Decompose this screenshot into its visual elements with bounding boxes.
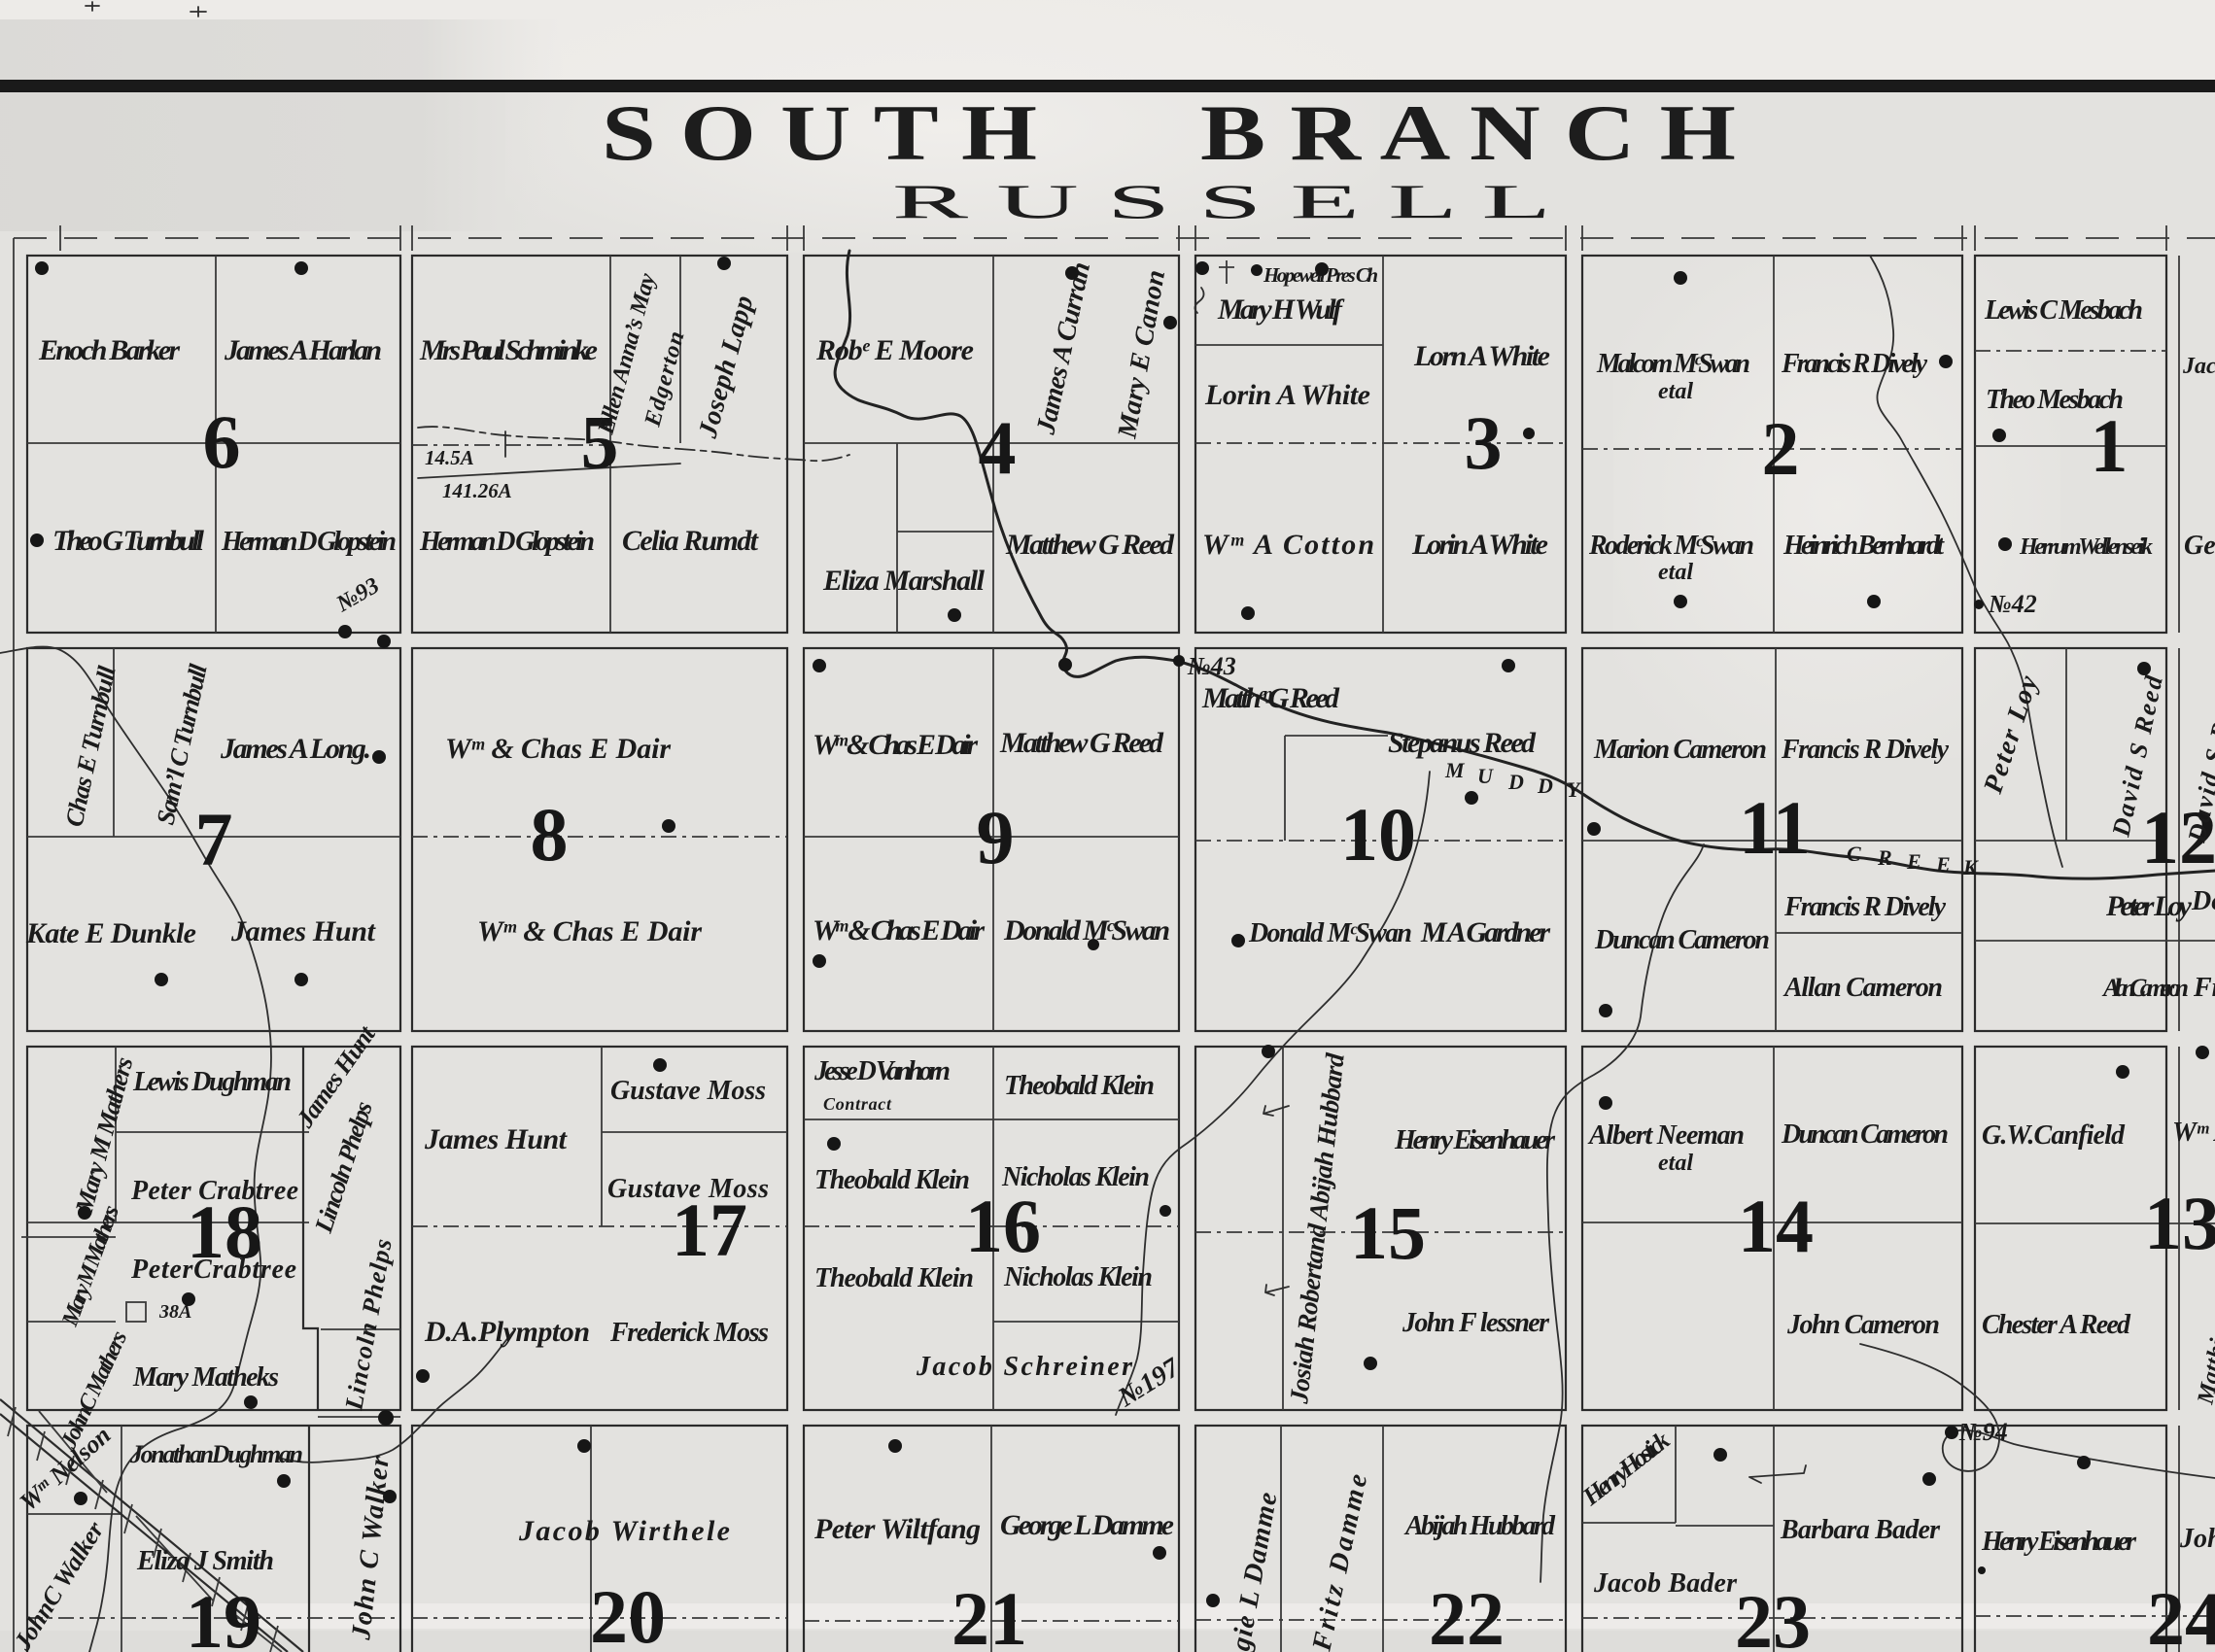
svg-text:Marion Cameron: Marion Cameron	[1593, 735, 1767, 765]
svg-text:16: 16	[965, 1184, 1041, 1268]
svg-text:Wᵐ & Chas E Dair: Wᵐ & Chas E Dair	[477, 915, 702, 947]
svg-text:21: 21	[952, 1576, 1027, 1652]
svg-text:24: 24	[2147, 1576, 2215, 1652]
svg-text:15: 15	[1350, 1190, 1426, 1275]
svg-text:HerrumWellenseik: HerrumWellenseik	[2019, 534, 2153, 560]
svg-text:Donald MᶜSwan: Donald MᶜSwan	[1003, 914, 1170, 946]
svg-text:Jacob Wirthele: Jacob Wirthele	[518, 1515, 730, 1547]
svg-text:6: 6	[203, 399, 241, 484]
svg-text:C: C	[1847, 842, 1861, 866]
svg-text:JonathanDughman: JonathanDughman	[129, 1440, 303, 1468]
svg-text:3: 3	[1465, 400, 1503, 485]
svg-text:Nicholas Klein: Nicholas Klein	[1003, 1262, 1153, 1292]
svg-text:etal: etal	[1658, 560, 1693, 585]
svg-text:19: 19	[186, 1579, 261, 1652]
svg-text:Theo Mesbach: Theo Mesbach	[1986, 385, 2124, 415]
svg-text:Nicholas Klein: Nicholas Klein	[1001, 1162, 1150, 1192]
svg-text:2: 2	[1762, 406, 1800, 491]
svg-text:Mary Matheks: Mary Matheks	[132, 1362, 279, 1393]
svg-text:John F lessner: John F lessner	[1402, 1308, 1550, 1338]
svg-text:Francis R Dively: Francis R Dively	[1783, 892, 1947, 922]
svg-text:John: John	[2179, 1524, 2215, 1554]
svg-text:Herman D Glopstein: Herman D Glopstein	[221, 527, 397, 557]
svg-text:Gustave Moss: Gustave Moss	[607, 1174, 769, 1204]
svg-text:Theobald Klein: Theobald Klein	[814, 1263, 974, 1293]
svg-text:14: 14	[1738, 1184, 1814, 1268]
svg-text:Malcom MᶜSwan: Malcom MᶜSwan	[1596, 349, 1750, 379]
svg-text:etal: etal	[1658, 379, 1693, 404]
svg-text:Matthew G Reed: Matthew G Reed	[1005, 529, 1175, 561]
svg-text:141.26A: 141.26A	[442, 479, 512, 502]
svg-text:MatthᵉᵑG Reed: MatthᵉᵑG Reed	[1201, 682, 1340, 714]
svg-text:E: E	[1935, 852, 1951, 877]
svg-text:etal: etal	[1658, 1151, 1693, 1176]
svg-text:Jesse D Vanhorn: Jesse D Vanhorn	[813, 1056, 951, 1086]
svg-text:Eliza Marshall: Eliza Marshall	[822, 565, 986, 597]
svg-text:R: R	[1877, 845, 1892, 870]
svg-text:№94: №94	[1958, 1418, 2008, 1446]
svg-text:14.5A: 14.5A	[425, 446, 474, 469]
svg-text:Wᵐ & Chas E Dair: Wᵐ & Chas E Dair	[813, 914, 985, 946]
svg-text:23: 23	[1735, 1579, 1811, 1652]
svg-text:Allan Cameron: Allan Cameron	[1782, 973, 1943, 1003]
svg-text:Lorn A White: Lorn A White	[1413, 340, 1550, 372]
svg-text:20: 20	[590, 1574, 666, 1652]
svg-text:Henry Eisenhauer: Henry Eisenhauer	[1394, 1125, 1556, 1155]
svg-text:11: 11	[1739, 785, 1811, 870]
svg-text:Theobald Klein: Theobald Klein	[814, 1165, 970, 1195]
svg-text:Matthew G Reed: Matthew G Reed	[999, 727, 1164, 759]
svg-text:Chester A Reed: Chester A Reed	[1982, 1310, 2131, 1340]
svg-text:PeterCrabtree: PeterCrabtree	[130, 1255, 296, 1285]
svg-text:Kate E Dunkle: Kate E Dunkle	[25, 917, 196, 949]
svg-text:S O U T H: S O U T H	[602, 88, 1037, 177]
svg-text:Contract: Contract	[823, 1094, 892, 1114]
svg-text:№43: №43	[1187, 652, 1236, 680]
svg-text:Stepanus Reed: Stepanus Reed	[1388, 727, 1537, 759]
svg-text:Dona: Dona	[2191, 886, 2215, 916]
svg-text:Roderick MᶜSwan: Roderick MᶜSwan	[1588, 531, 1754, 561]
svg-text:Henry Eisenhauer: Henry Eisenhauer	[1981, 1527, 2137, 1557]
svg-text:D.A.Plympton: D.A.Plympton	[424, 1316, 590, 1348]
svg-text:22: 22	[1429, 1576, 1505, 1652]
svg-text:Jacob Bader: Jacob Bader	[1593, 1568, 1738, 1599]
svg-text:Lewis C Mesbach: Lewis C Mesbach	[1984, 295, 2143, 326]
svg-text:Jacob Schreiner: Jacob Schreiner	[916, 1352, 1133, 1382]
svg-text:Wᵐ A: Wᵐ A	[2172, 1118, 2215, 1148]
svg-text:7: 7	[195, 797, 233, 881]
svg-text:10: 10	[1340, 792, 1416, 877]
svg-text:Albert Neeman: Albert Neeman	[1587, 1120, 1745, 1151]
svg-text:Abijah Hubbard: Abijah Hubbard	[1403, 1511, 1556, 1541]
svg-text:8: 8	[531, 792, 569, 877]
svg-text:Enoch Barker: Enoch Barker	[38, 334, 180, 366]
svg-text:Peter Loy: Peter Loy	[2105, 890, 2193, 922]
svg-text:D: D	[1537, 774, 1553, 798]
svg-text:Peter Wiltfang: Peter Wiltfang	[813, 1513, 981, 1545]
svg-text:U: U	[1477, 764, 1494, 788]
svg-text:4: 4	[979, 405, 1017, 490]
svg-text:James A Long.: James A Long.	[220, 733, 371, 765]
svg-text:James A Harlan: James A Harlan	[224, 334, 382, 366]
svg-text:M: M	[1444, 758, 1466, 782]
svg-text:Celia Rumdt: Celia Rumdt	[622, 525, 760, 557]
svg-text:George L Damme: George L Damme	[1000, 1509, 1174, 1541]
svg-text:John Cameron: John Cameron	[1786, 1310, 1940, 1340]
svg-text:James Hunt: James Hunt	[424, 1123, 569, 1155]
svg-text:Fran: Fran	[2193, 973, 2215, 1003]
svg-text:13: 13	[2144, 1181, 2215, 1265]
svg-text:Wᵐ & Chas E Dair: Wᵐ & Chas E Dair	[813, 729, 978, 761]
svg-text:B R A N C H: B R A N C H	[1200, 88, 1736, 177]
svg-text:James Hunt: James Hunt	[230, 915, 377, 947]
svg-text:D: D	[1507, 770, 1524, 794]
svg-text:Gustave Moss: Gustave Moss	[610, 1076, 766, 1106]
svg-text:M A Gardner: M A Gardner	[1420, 916, 1550, 948]
svg-text:Eliza J Smith: Eliza J Smith	[136, 1546, 274, 1576]
svg-text:Wᵐ & Chas E Dair: Wᵐ & Chas E Dair	[445, 733, 671, 765]
svg-text:Wᵐ A Cotton: Wᵐ A Cotton	[1202, 529, 1374, 561]
svg-text:9: 9	[977, 795, 1015, 879]
svg-text:R U S S E L L: R U S S E L L	[892, 174, 1551, 228]
svg-text:Francis R Dively: Francis R Dively	[1781, 349, 1928, 379]
svg-text:Frederick Moss: Frederick Moss	[609, 1318, 769, 1348]
svg-text:Heinrich Bernhardt: Heinrich Bernhardt	[1782, 531, 1945, 561]
svg-text:Francis R Dively: Francis R Dively	[1781, 735, 1950, 765]
svg-text:Herman D Glopstein: Herman D Glopstein	[419, 527, 595, 557]
svg-text:Theo G Turnbull: Theo G Turnbull	[52, 525, 205, 557]
svg-text:Duncan Cameron: Duncan Cameron	[1594, 925, 1770, 955]
svg-text:Mrs Paul Schminke: Mrs Paul Schminke	[419, 334, 598, 366]
svg-text:Mary H Wulf: Mary H Wulf	[1217, 293, 1345, 326]
svg-text:Geo C: Geo C	[2184, 531, 2215, 561]
svg-text:Jaco: Jaco	[2182, 354, 2215, 379]
svg-text:Lewis Dughman: Lewis Dughman	[132, 1067, 292, 1097]
svg-text:№42: №42	[1988, 590, 2037, 618]
svg-text:Lorin A White: Lorin A White	[1411, 529, 1548, 561]
svg-text:Donald MᶜSwan: Donald MᶜSwan	[1248, 918, 1412, 948]
svg-text:E: E	[1906, 849, 1921, 874]
svg-text:1: 1	[2091, 403, 2128, 488]
svg-text:Peter Crabtree: Peter Crabtree	[130, 1176, 298, 1206]
svg-text:Barbara Bader: Barbara Bader	[1780, 1515, 1941, 1545]
svg-text:K: K	[1962, 855, 1979, 879]
svg-text:G.W.Canfield: G.W.Canfield	[1982, 1120, 2126, 1151]
svg-text:Robᵉ E Moore: Robᵉ E Moore	[815, 334, 974, 366]
svg-text:Lorin A White: Lorin A White	[1204, 379, 1370, 411]
svg-text:Duncan Cameron: Duncan Cameron	[1781, 1119, 1949, 1150]
svg-text:Theobald Klein: Theobald Klein	[1004, 1071, 1155, 1101]
svg-text:AllanCameron: AllanCameron	[2101, 974, 2189, 1002]
